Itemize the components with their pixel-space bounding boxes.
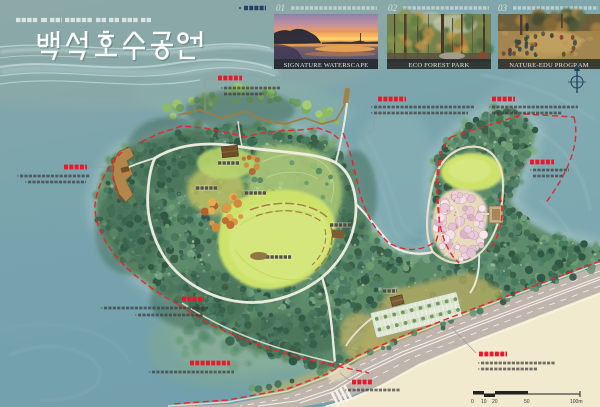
svg-text:20: 20 (492, 399, 498, 405)
svg-text:10: 10 (481, 399, 487, 405)
svg-text:100m: 100m (570, 399, 583, 405)
svg-text:01: 01 (276, 3, 285, 13)
svg-text:03: 03 (498, 3, 508, 13)
svg-text:0: 0 (471, 399, 474, 405)
svg-text:ECO FOREST PARK: ECO FOREST PARK (409, 62, 470, 69)
svg-text:SIGNATURE WATERSCAPE: SIGNATURE WATERSCAPE (284, 62, 369, 69)
svg-text:02: 02 (388, 3, 398, 13)
svg-text:50: 50 (524, 399, 530, 405)
